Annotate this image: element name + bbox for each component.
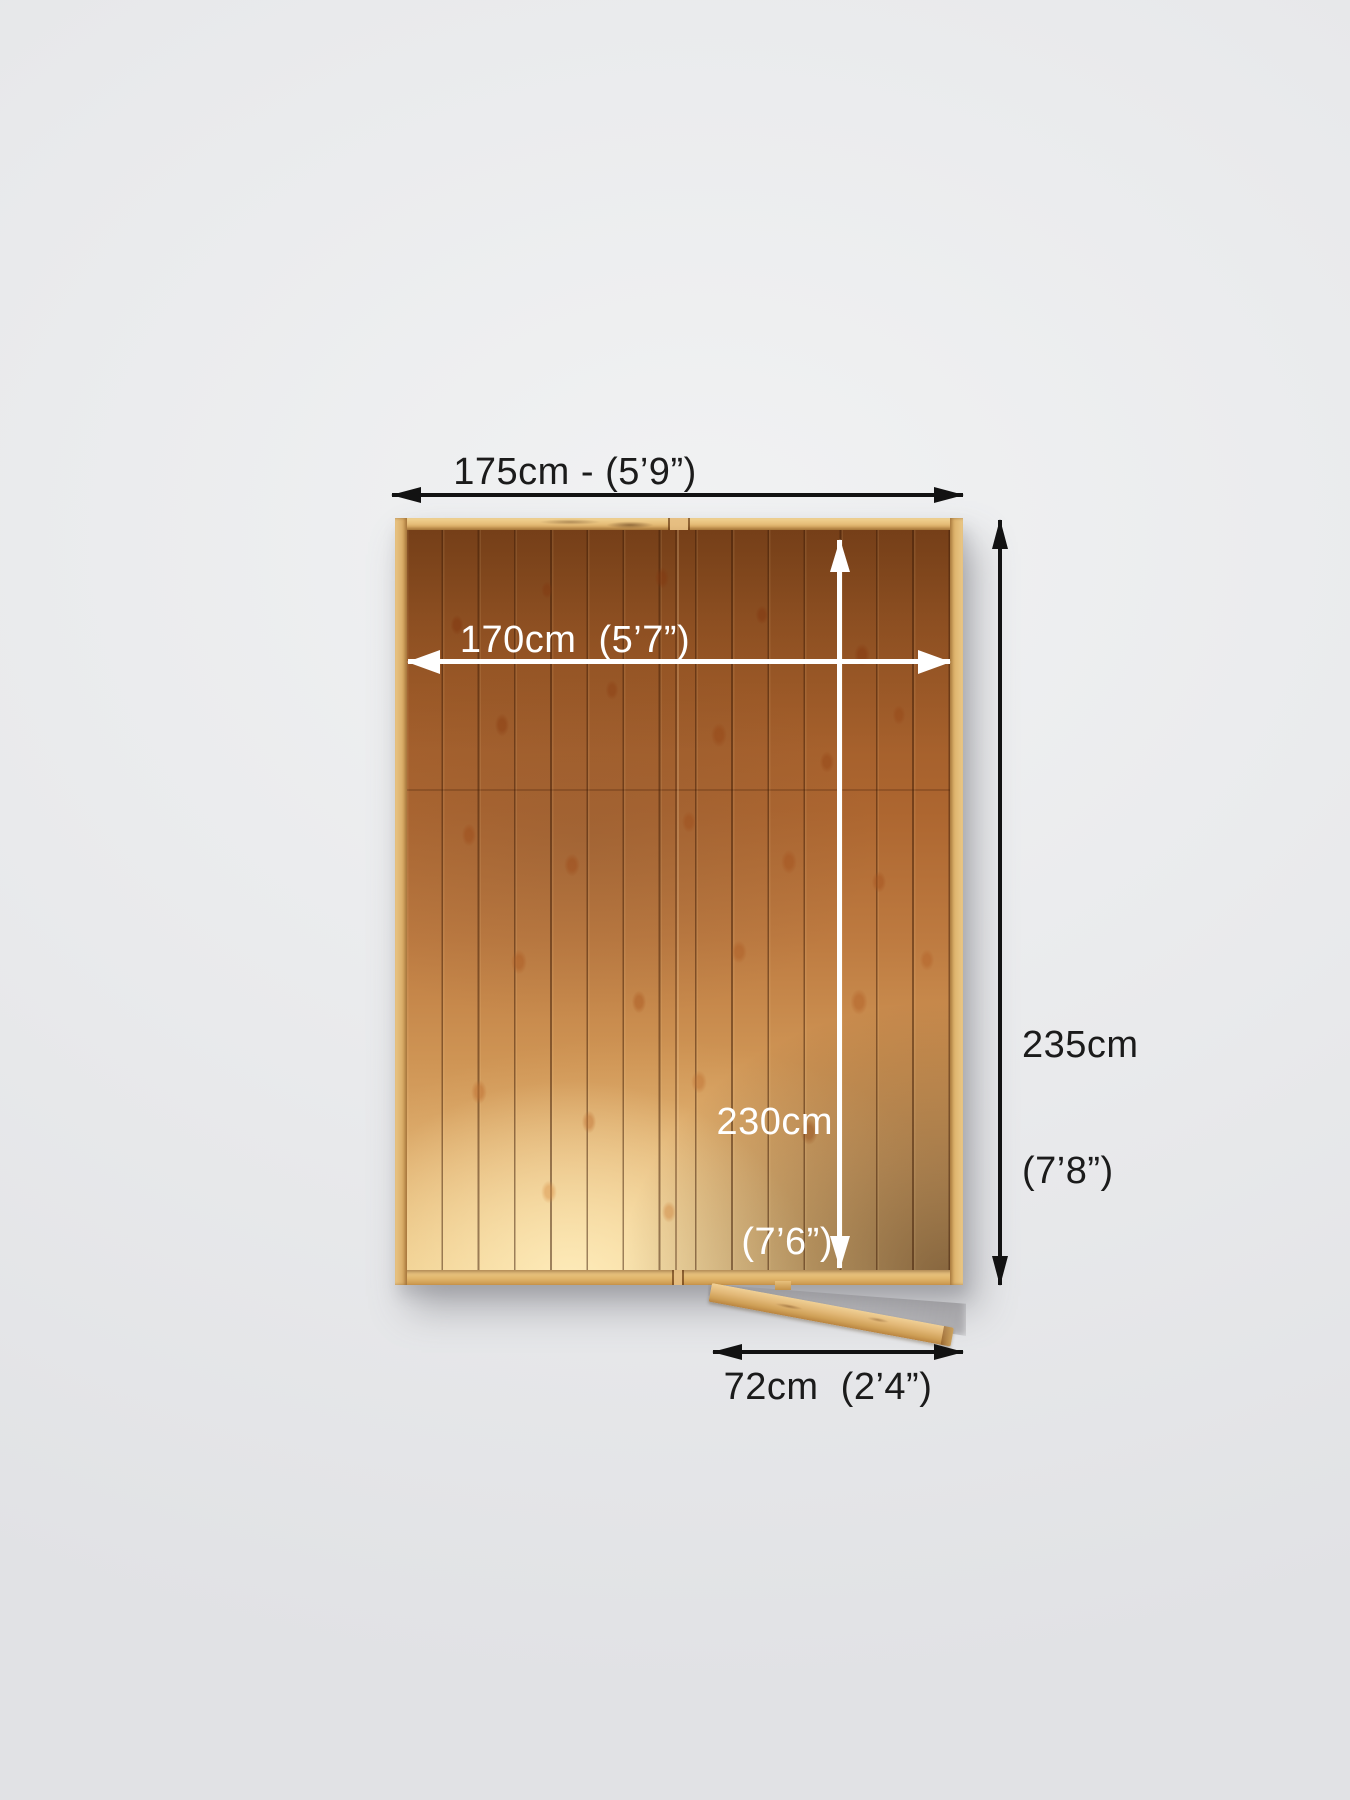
inner-depth-label: 230cm (7’6”) [595,1022,833,1342]
arrowhead-down-icon [992,1256,1008,1286]
outer-depth-arrow [998,520,1002,1285]
inner-depth-line2: (7’6”) [595,1222,833,1262]
arrowhead-right-icon [918,650,951,674]
arrowhead-up-icon [830,539,850,572]
outer-width-label: 175cm - (5’9”) [395,450,755,494]
arrowhead-right-icon [934,487,964,503]
frame-joint-top [668,518,690,530]
arrowhead-left-icon [712,1344,742,1360]
outer-depth-line1: 235cm [1022,1024,1262,1066]
arrowhead-up-icon [992,519,1008,549]
inner-depth-line1: 230cm [595,1102,833,1142]
inner-width-label: 170cm (5’7”) [395,618,755,662]
diagram-canvas: 175cm - (5’9”) 170cm (5’7”) 235cm (7’8”)… [0,0,1350,1800]
door-width-arrow [713,1350,963,1354]
outer-depth-line2: (7’8”) [1022,1150,1262,1192]
outer-depth-label: 235cm (7’8”) [1022,940,1262,1276]
inner-depth-arrow [837,540,842,1268]
frame-right [950,518,963,1285]
arrowhead-right-icon [934,1344,964,1360]
door-width-label: 72cm (2’4”) [668,1365,988,1409]
frame-top [395,518,963,530]
